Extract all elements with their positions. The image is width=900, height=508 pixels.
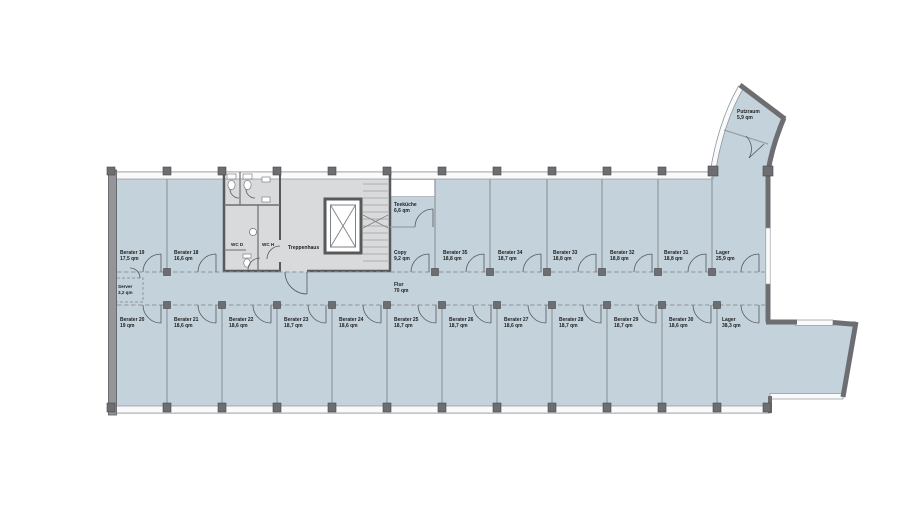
toilet-bowl-1: [228, 180, 235, 189]
building-shell: [109, 85, 858, 415]
column: [438, 403, 446, 412]
column: [544, 269, 551, 276]
room-label-server: Server3,2 qm: [118, 284, 133, 295]
column: [107, 167, 115, 175]
column: [603, 403, 611, 412]
column: [328, 403, 336, 412]
corner-column-right-wall-top: [763, 166, 773, 176]
column: [493, 167, 501, 175]
column: [219, 302, 226, 309]
column: [218, 167, 226, 175]
sink-wc-h-2: [262, 197, 270, 202]
column: [383, 167, 391, 175]
toilet-cistern-2: [243, 174, 252, 179]
room-label-treppenhaus: Treppenhaus: [288, 245, 319, 251]
column: [438, 167, 446, 175]
column: [493, 403, 501, 412]
toilet-cistern-1: [227, 174, 236, 179]
toilet-cistern-3: [243, 254, 251, 258]
column: [548, 167, 556, 175]
column: [439, 302, 446, 309]
room-label-wc-d: WC D: [231, 242, 244, 247]
column: [329, 302, 336, 309]
column: [655, 269, 662, 276]
column: [107, 403, 115, 412]
floor-plan-drawing: Berater 1917,5 qm Berater 1816,6 qm WC D…: [0, 0, 900, 508]
column: [763, 403, 771, 412]
column: [218, 403, 226, 412]
column: [494, 302, 501, 309]
column: [164, 269, 171, 276]
window-band-top: [110, 172, 713, 179]
floor-plan-canvas: Berater 1917,5 qm Berater 1816,6 qm WC D…: [0, 0, 900, 508]
column: [709, 269, 716, 276]
column: [658, 403, 666, 412]
window-right: [766, 228, 770, 284]
column: [383, 403, 391, 412]
toilet-bowl-3: [244, 259, 250, 267]
shaft: [390, 180, 435, 197]
sink-wc-h-1: [262, 177, 270, 182]
column: [599, 269, 606, 276]
column: [714, 302, 721, 309]
room-label-wc-h: WC H: [262, 242, 275, 247]
column: [603, 167, 611, 175]
corner-column-top-wall-end: [708, 166, 718, 176]
column: [713, 403, 721, 412]
wall-left: [109, 170, 117, 415]
column: [274, 302, 281, 309]
column: [273, 403, 281, 412]
column: [487, 269, 494, 276]
column: [549, 302, 556, 309]
column: [163, 167, 171, 175]
column: [659, 302, 666, 309]
column: [432, 269, 439, 276]
column: [273, 167, 281, 175]
column: [384, 302, 391, 309]
column: [604, 302, 611, 309]
column: [163, 403, 171, 412]
column: [658, 167, 666, 175]
column: [548, 403, 556, 412]
column: [328, 167, 336, 175]
column: [164, 302, 171, 309]
window-band-extension-bottom: [770, 394, 843, 400]
window-band-extension-top: [795, 320, 833, 326]
sink-round: [249, 228, 256, 235]
toilet-bowl-2: [244, 180, 251, 189]
